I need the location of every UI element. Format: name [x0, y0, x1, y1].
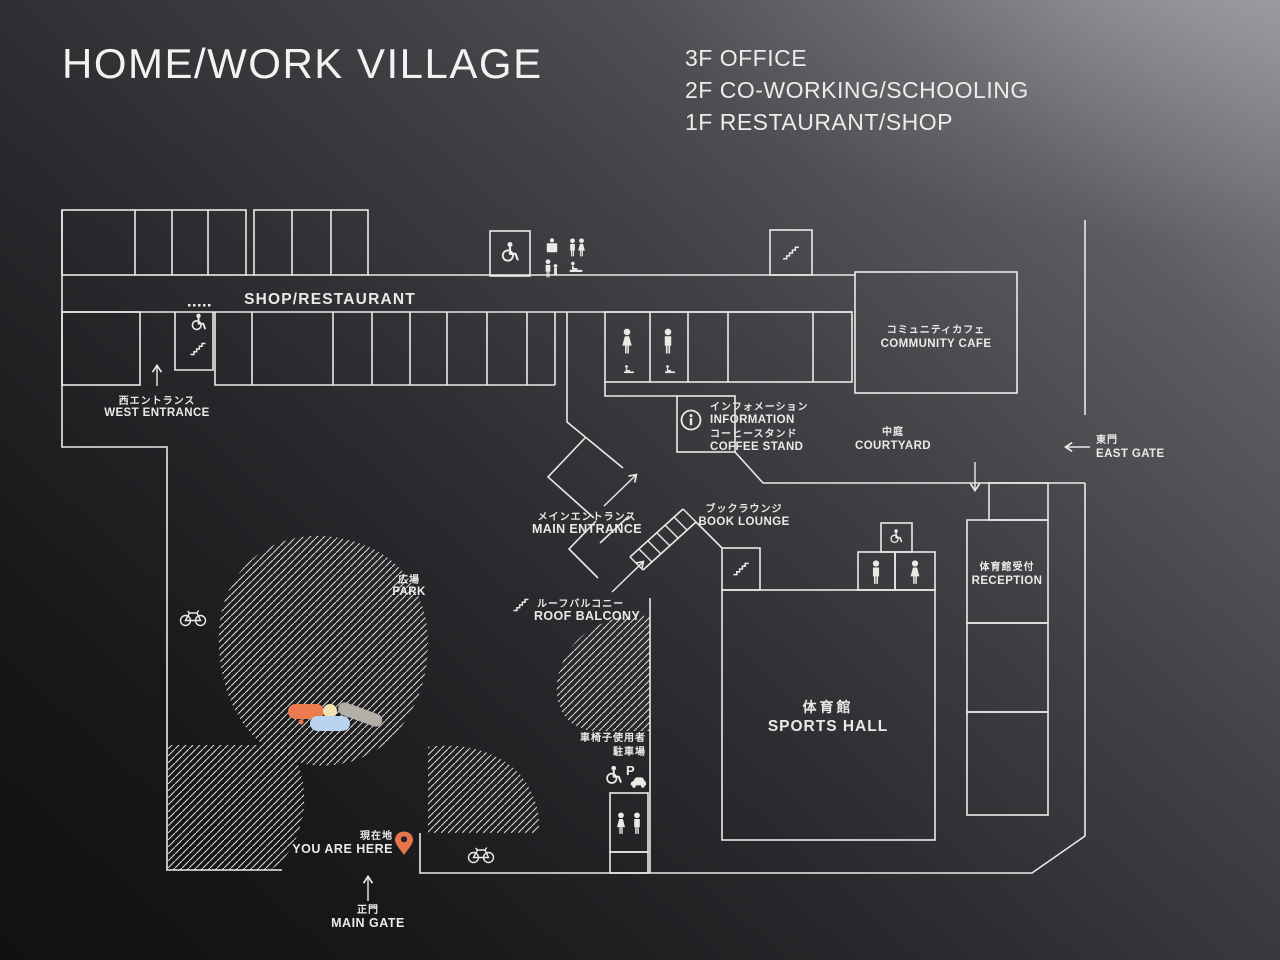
community-cafe-label-en: COMMUNITY CAFE [881, 338, 992, 350]
courtyard-label-jp: 中庭 [882, 425, 904, 438]
man-icon [873, 560, 879, 584]
southwest-green-hatch-area [168, 745, 304, 870]
diaper-change-icon [665, 365, 675, 373]
car-icon [631, 777, 646, 787]
location-pin-icon [395, 832, 413, 856]
north-stair-bump [770, 230, 812, 275]
community-cafe: コミュニティカフェ COMMUNITY CAFE [855, 272, 1017, 393]
you-are-here-label-jp: 現在地 [360, 829, 393, 842]
man-icon [665, 329, 672, 354]
stairs-icon [733, 563, 748, 574]
diaper-change-icon [624, 365, 634, 373]
community-cafe-label-jp: コミュニティカフェ [887, 324, 985, 336]
baby-care-icon [547, 238, 557, 252]
shop-row-lower [62, 312, 623, 468]
reception-label-en: RECEPTION [972, 575, 1043, 587]
east-gate-label-jp: 東門 [1096, 433, 1118, 446]
stairs-icon [191, 344, 206, 355]
play-structure-yellow [323, 704, 337, 718]
man-icon [634, 812, 640, 833]
park-label-jp: 広場 [398, 573, 420, 586]
sports-hall-label-jp: 体育館 [803, 699, 854, 715]
parking-p-letter: P [626, 763, 635, 778]
roof-balcony-label-en: ROOF BALCONY [534, 609, 640, 623]
stairs-icon [514, 600, 529, 611]
sports-hall-label-en: SPORTS HALL [768, 718, 888, 735]
information-booth: インフォメーション INFORMATION コーヒースタンド COFFEE ST… [605, 382, 809, 453]
play-structure-blue [310, 716, 350, 731]
book-lounge: ブックラウンジ BOOK LOUNGE [698, 502, 789, 528]
courtyard: 中庭 COURTYARD [855, 425, 975, 490]
main-gate-label-jp: 正門 [357, 904, 379, 916]
baby-care-icon-cluster [546, 238, 585, 277]
you-are-here-label-en: YOU ARE HERE [292, 842, 393, 856]
main-entrance-label-en: MAIN ENTRANCE [532, 522, 642, 536]
woman-icon [911, 560, 920, 584]
park-hatch-area [219, 536, 428, 766]
south-green-hatch-area [428, 746, 539, 833]
west-entrance-label-en: WEST ENTRANCE [104, 407, 210, 419]
woman-icon [617, 812, 625, 833]
accessible-toilet-upper [490, 231, 530, 276]
west-entrance: 西エントランス WEST ENTRANCE [104, 366, 210, 419]
east-gate-label-en: EAST GATE [1096, 448, 1165, 460]
sports-hall: 体育館 SPORTS HALL [722, 523, 935, 840]
accessible-parking-hatch-area [557, 616, 650, 731]
wheelchair-icon [503, 242, 518, 261]
wheelchair-icon [891, 529, 902, 542]
park-label-en: PARK [392, 586, 426, 598]
shop-restaurant-label: SHOP/RESTAURANT [244, 291, 416, 308]
main-entrance: メインエントランス MAIN ENTRANCE [532, 438, 722, 592]
information-label-jp: インフォメーション [710, 401, 809, 413]
book-lounge-label-en: BOOK LOUNGE [698, 516, 789, 528]
family-restroom-icon [570, 238, 585, 256]
site-map: SHOP/RESTAURANT 西エントランス WEST ENTRANCE [0, 0, 1280, 960]
book-lounge-label-jp: ブックラウンジ [706, 502, 783, 515]
reception: 体育館受付 RECEPTION [967, 483, 1048, 815]
bicycle-icon [469, 848, 494, 863]
main-entrance-arrow-2 [612, 562, 643, 592]
small-caption-illegible [188, 304, 211, 307]
coffee-stand-label-en: COFFEE STAND [710, 441, 803, 453]
woman-icon [622, 329, 631, 354]
roof-balcony: ルーフバルコニー ROOF BALCONY [514, 598, 641, 623]
courtyard-label-en: COURTYARD [855, 440, 931, 452]
reception-label-jp: 体育館受付 [980, 560, 1035, 573]
main-entrance-arrow [604, 475, 636, 506]
shop-row-upper [62, 210, 855, 312]
accessible-parking-label-1: 車椅子使用者 [580, 731, 646, 744]
wheelchair-icon [192, 314, 205, 330]
stairs-icon [783, 247, 799, 259]
south-toilets [610, 793, 648, 873]
info-icon [682, 411, 701, 430]
coffee-stand-label-jp: コーヒースタンド [710, 428, 798, 440]
you-are-here: 現在地 YOU ARE HERE [292, 829, 413, 856]
accessible-parking: 車椅子使用者 駐車場 P [580, 731, 646, 788]
north-toilets [605, 312, 852, 382]
main-gate-label-en: MAIN GATE [331, 916, 405, 930]
entrance-steps [630, 509, 696, 570]
main-gate: 正門 MAIN GATE [331, 877, 405, 930]
signboard: HOME/WORK VILLAGE 3F OFFICE 2F CO-WORKIN… [0, 0, 1280, 960]
bicycle-icon [181, 611, 206, 626]
information-label-en: INFORMATION [710, 414, 795, 426]
east-gate: 東門 EAST GATE [1066, 433, 1165, 460]
play-structure-dot [299, 720, 304, 725]
wheelchair-icon [607, 766, 621, 783]
west-entrance-label-jp: 西エントランス [119, 395, 196, 407]
accessible-parking-label-2: 駐車場 [613, 745, 646, 758]
diaper-change-icon [570, 262, 583, 272]
